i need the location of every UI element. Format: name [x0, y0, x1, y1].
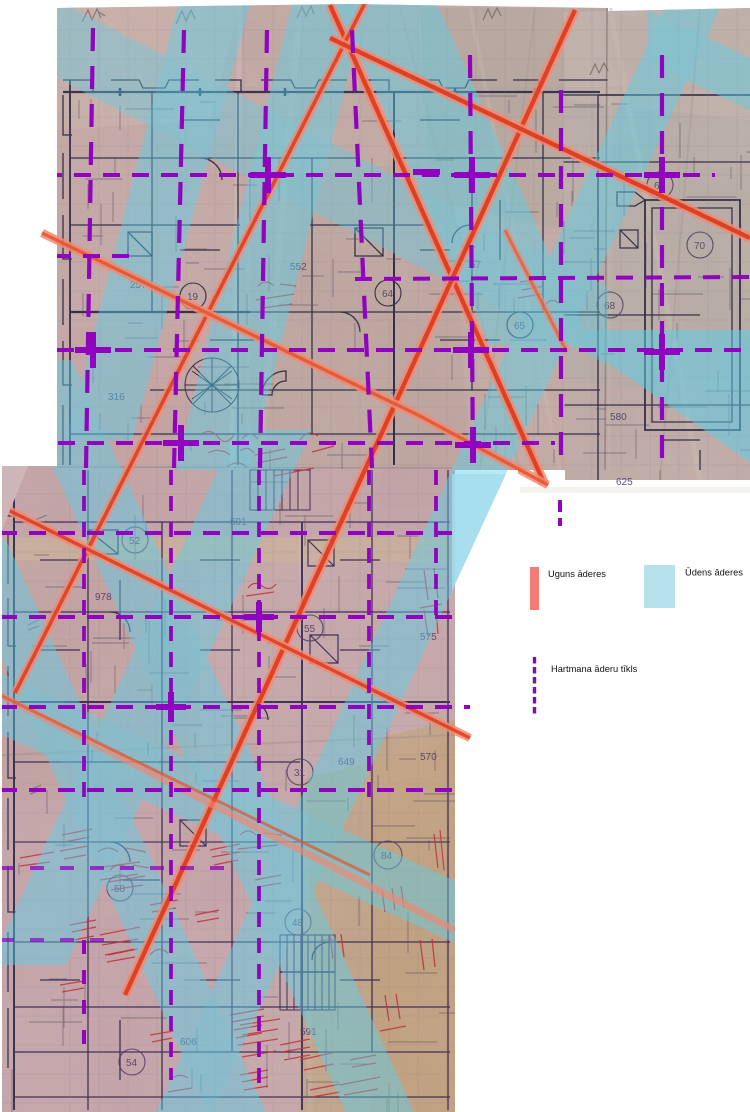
svg-text:625: 625 [616, 477, 633, 488]
svg-text:70: 70 [694, 241, 706, 252]
svg-text:55: 55 [304, 624, 316, 635]
svg-text:Hartmana āderu tīkls: Hartmana āderu tīkls [551, 664, 638, 674]
svg-text:31: 31 [294, 768, 306, 779]
svg-text:Ūdens āderes: Ūdens āderes [685, 568, 743, 578]
svg-text:Uguns āderes: Uguns āderes [548, 569, 606, 579]
svg-text:978: 978 [95, 592, 112, 603]
svg-text:580: 580 [610, 412, 627, 423]
